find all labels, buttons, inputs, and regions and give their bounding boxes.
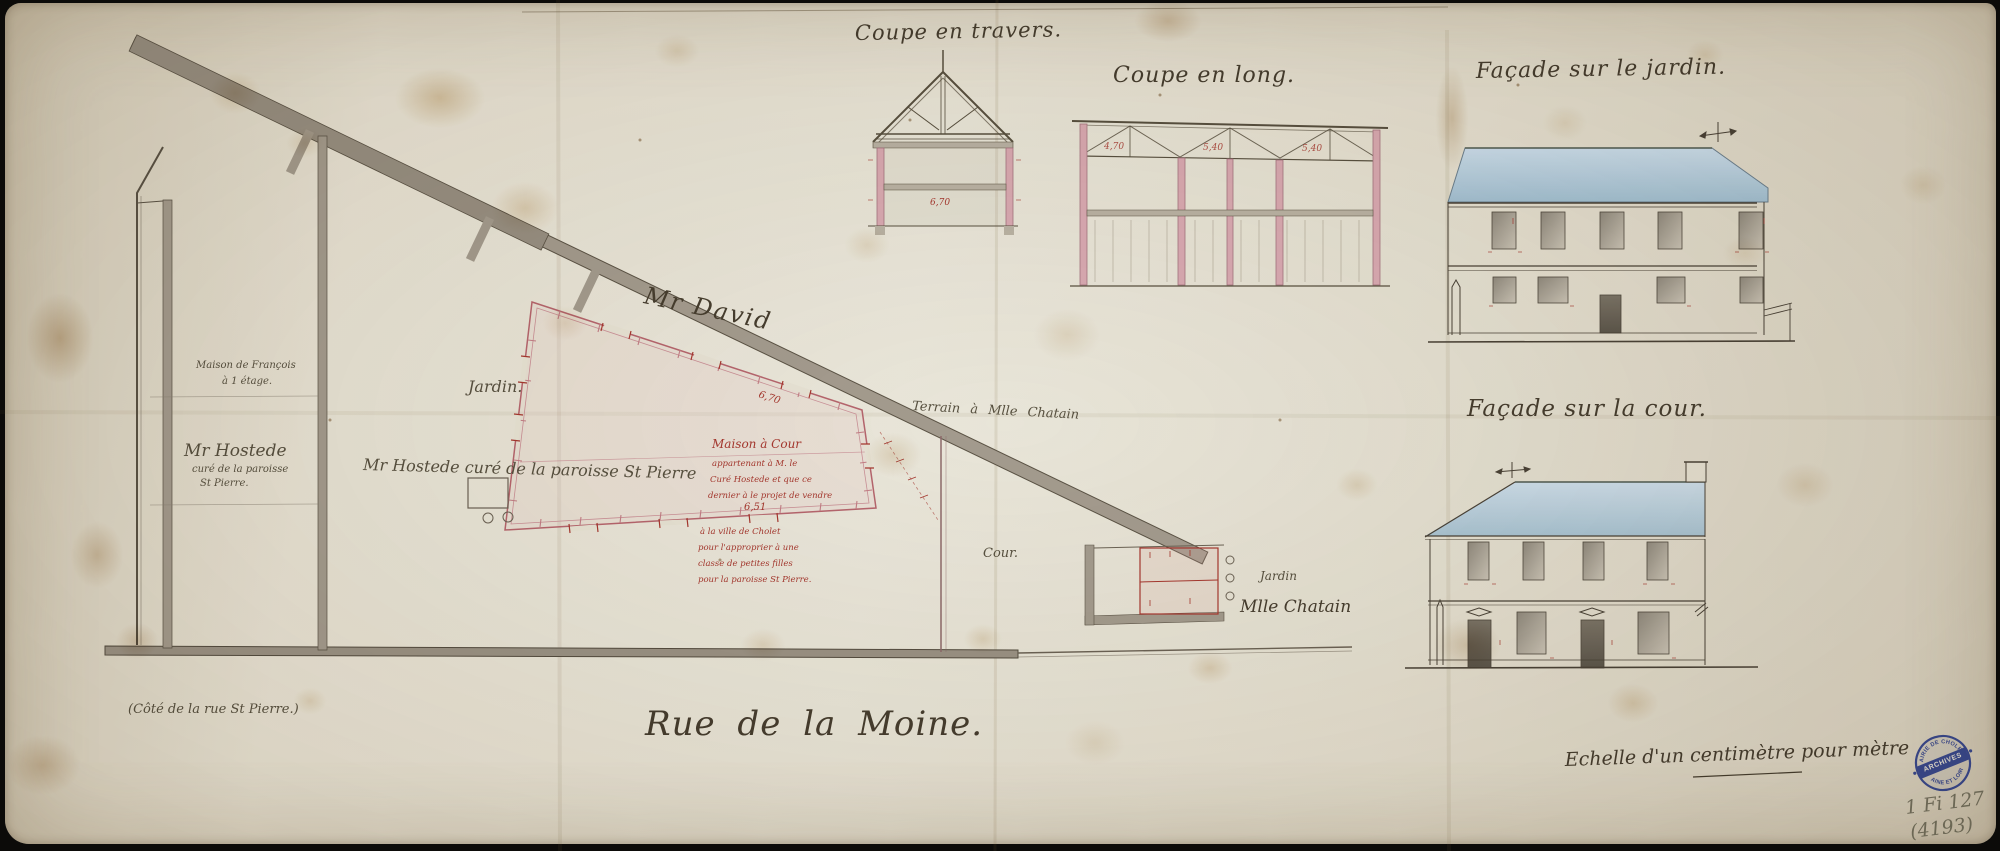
- archives-stamp-icon: MAIRIE DE CHOLET ARCHIVES MAINE ET LOIRE: [1905, 728, 1982, 799]
- red-note-line: à la ville de Cholet: [700, 526, 781, 537]
- archive-reference: 1 Fi 127 (4193): [1904, 787, 1987, 843]
- facade-title-courtyard: Façade sur la cour.: [1466, 396, 1707, 422]
- plan-label-left-house-1: Maison de François: [195, 360, 296, 371]
- plan-label-cour: Cour.: [983, 546, 1018, 561]
- red-note-line: pour la paroisse St Pierre.: [698, 575, 811, 585]
- section-title-transverse: Coupe en travers.: [855, 17, 1063, 45]
- dim-travers: 6,70: [930, 198, 950, 208]
- plan-label-chatain: Mlle Chatain: [1239, 597, 1351, 617]
- red-note-line: Maison à Cour: [711, 437, 802, 451]
- dim-long-2: 5,40: [1203, 143, 1223, 153]
- plan-label-left-owner-2: curé de la paroisse: [192, 464, 288, 475]
- archive-ref-line2: (4193): [1909, 813, 1974, 843]
- red-note-line: dernier à le projet de vendre: [708, 490, 832, 501]
- plan-drawing-svg: Coupe en travers. Coupe en long. Façade …: [0, 0, 2000, 851]
- orientation-mark-icon: [1700, 122, 1736, 142]
- red-note-line: appartenant à M. le: [712, 458, 797, 469]
- plan-label-left-owner-1: Mr Hostede: [183, 441, 287, 461]
- plan-label-left-owner-3: St Pierre.: [200, 478, 249, 489]
- site-plan-drawing: [105, 35, 1657, 658]
- orientation-mark-icon: [1496, 462, 1530, 478]
- dim-long-1: 4,70: [1103, 142, 1124, 152]
- plan-side-note: (Côté de la rue St Pierre.): [128, 702, 299, 717]
- dim-plan-mid: 6,51: [744, 502, 766, 513]
- facade-title-garden: Façade sur le jardin.: [1475, 55, 1727, 84]
- courtyard-facade-drawing: [1405, 462, 1758, 668]
- plan-label-neighbor-david: Mr David: [641, 281, 775, 336]
- red-note-line: pour l'approprier à une: [698, 542, 799, 553]
- street-label: Rue de la Moine.: [644, 704, 983, 744]
- plan-label-left-house-2: à 1 étage.: [222, 376, 272, 387]
- archive-ref-line1: 1 Fi 127: [1904, 787, 1987, 819]
- red-note-line: Curé Hostede et que ce: [710, 474, 812, 485]
- garden-facade-drawing: [1428, 122, 1795, 342]
- plan-right-structure: [1085, 545, 1234, 625]
- scale-note: Echelle d'un centimètre pour mètre: [1563, 737, 1909, 777]
- scanned-architectural-plan: Coupe en travers. Coupe en long. Façade …: [0, 0, 2000, 851]
- plan-label-jardin-right: Jardin: [1257, 569, 1297, 583]
- dim-long-3: 5,40: [1302, 144, 1322, 154]
- scale-note-text: Echelle d'un centimètre pour mètre: [1563, 737, 1909, 771]
- section-title-longitudinal: Coupe en long.: [1113, 63, 1295, 88]
- red-note-line: classe de petites filles: [698, 559, 793, 569]
- plan-label-garden: Jardin.: [465, 377, 522, 396]
